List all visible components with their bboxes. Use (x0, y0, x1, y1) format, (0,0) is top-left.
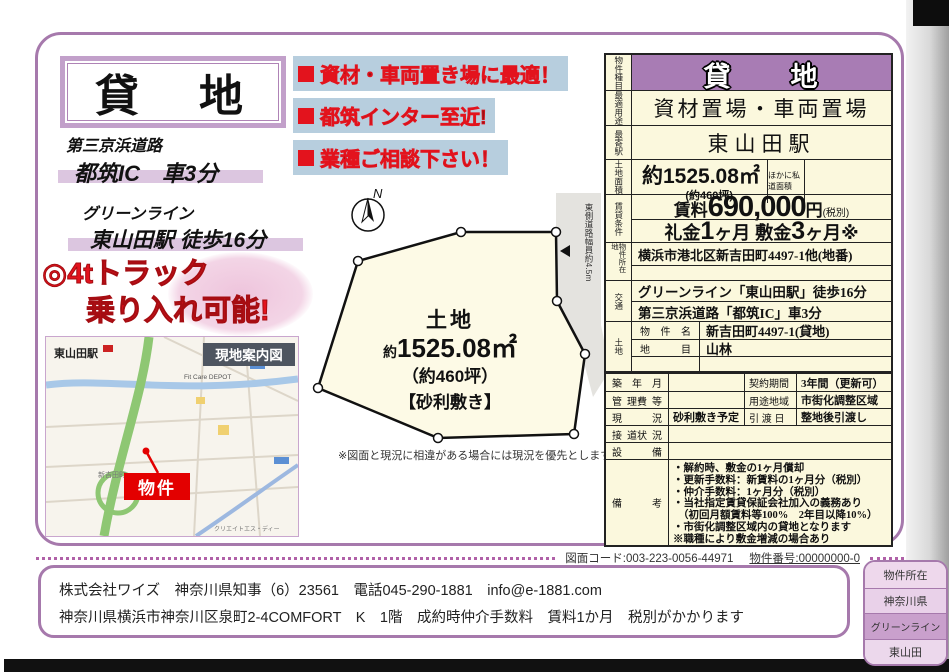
row-label-location: 物件所在地 (606, 243, 632, 280)
location-badge: 物件所在 神奈川県 グリーンライン 東山田 (863, 560, 948, 666)
map-title: 現地案内図 (215, 347, 283, 363)
map-store-label: Fit Care DEPOT (184, 374, 231, 381)
location-empty-row (632, 265, 891, 280)
mgmt-label: 管理費等 (606, 392, 668, 408)
equipment-value (668, 443, 891, 459)
row-label-use: 最適用途 (606, 91, 632, 125)
traffic-line1: グリーンライン「東山田駅」徒歩16分 (632, 281, 867, 301)
access-road-line1: 第三京浜道路 (66, 132, 218, 156)
contract-value: 3年間（更新可） (796, 374, 891, 391)
slogan-text: 都筑インター至近! (320, 107, 487, 129)
access-road: 第三京浜道路 都筑IC 車3分 (52, 132, 218, 188)
row-label-land: 土地 (606, 322, 632, 371)
equipment-label: 設備 (606, 443, 668, 459)
scan-bottom-bar (4, 659, 949, 672)
built-label: 築年月 (606, 374, 668, 391)
access-rail-line1: グリーンライン (82, 200, 266, 224)
red-square-icon (298, 150, 314, 166)
company-line1: 株式会社ワイズ 神奈川県知事（6）23561 電話045-290-1881 in… (59, 578, 847, 605)
row-label-station: 最寄駅 (606, 126, 632, 159)
remark-item: （初回月額賃料等100% 2年目以降10%） (673, 510, 889, 522)
dotted-line (36, 557, 555, 560)
slogan-text: 資材・車両置き場に最適！ (320, 65, 560, 87)
plot-name: 土地 (426, 308, 474, 332)
map-property-marker: 物件 (138, 478, 176, 498)
zoning-value: 市街化調整区域 (796, 392, 891, 408)
use-value: 資材置場・車両置場 (654, 93, 870, 123)
map-station-label: 東山田駅 (54, 346, 98, 360)
row-label-area: 土地面積 (606, 160, 632, 194)
access-road-line2: 都筑IC 車3分 (74, 156, 218, 188)
truck-line1: ◎4tトラック (42, 250, 209, 292)
badge-row: グリーンライン (865, 613, 946, 639)
zoning-label: 用途地域 (744, 392, 796, 408)
land-empty-label (632, 357, 700, 371)
red-square-icon (298, 108, 314, 124)
land-name-label: 物件名 (632, 322, 700, 339)
deposit-terms: 礼金1ヶ月 敷金3ヶ月※ (664, 217, 858, 246)
remarks-list: ・解約時、敷金の1ヶ月償却 ・更新手数料：新賃料の1ヶ月分（税別） ・仲介手数料… (668, 460, 891, 545)
row-label-rent: 賃貸条件 (606, 195, 632, 242)
remark-item: ・市街化調整区域内の貸地となります (673, 522, 889, 534)
remark-item: ・更新手数料：新賃料の1ヶ月分（税別） (673, 475, 889, 487)
remark-item: ・仲介手数料：1ヶ月分（税別） (673, 487, 889, 499)
company-info-box: 株式会社ワイズ 神奈川県知事（6）23561 電話045-290-1881 in… (38, 565, 850, 638)
location-value: 横浜市港北区新吉田町4497-1他(地番) (632, 245, 853, 264)
row-label-type: 物件種目 (606, 55, 632, 90)
plot-area: 約1525.08㎡ (383, 333, 517, 363)
page-title: 貸 地 (95, 60, 251, 124)
mgmt-value (668, 392, 744, 408)
remark-item: ・当社指定賃貸保証会社加入の義務あり (673, 498, 889, 510)
access-rail: グリーンライン 東山田駅 徒歩16分 (68, 200, 266, 254)
property-type-value: 貸 地 (704, 55, 820, 94)
contract-label: 契約期間 (744, 374, 796, 391)
slogan-item: 資材・車両置き場に最適！ (293, 56, 568, 91)
drawing-code: 図面コード:003-223-0056-44971 (565, 550, 733, 566)
badge-row: 神奈川県 (865, 588, 946, 614)
badge-row: 東山田 (865, 639, 946, 665)
handover-value: 整地後引渡し (796, 409, 891, 425)
red-square-icon (298, 66, 314, 82)
north-arrow-icon: N (352, 186, 384, 231)
current-value: 砂利敷き予定 (668, 409, 744, 425)
land-category-value: 山林 (700, 339, 891, 358)
map-graphic: 東山田駅 Fit Care DEPOT 新吉田町 クリエイトエス・ディー オーケ… (46, 337, 298, 536)
traffic-line2: 第三京浜道路「都筑IC」車3分 (632, 302, 822, 322)
built-value (668, 374, 744, 391)
property-number: 物件番号:00000000-0 (749, 550, 860, 566)
road-contact-label: 接道状況 (606, 426, 668, 442)
plot-tsubo: （約460坪） (402, 366, 498, 386)
slogan-item: 都筑インター至近! (293, 98, 495, 133)
map-poi-label: クリエイトエス・ディー (214, 525, 280, 533)
property-table-2: 築年月 契約期間 3年間（更新可） 管理費等 用途地域 市街化調整区域 現況 砂… (604, 372, 893, 547)
map-area-label: 新吉田町 (98, 470, 126, 479)
meta-line: 図面コード:003-223-0056-44971 物件番号:00000000-0 (36, 550, 904, 566)
remark-item: ・解約時、敷金の1ヶ月償却 (673, 463, 889, 475)
slogan-list: 資材・車両置き場に最適！ 都筑インター至近! 業種ご相談下さい！ (293, 56, 603, 182)
remarks-label: 備考 (606, 460, 668, 545)
title-box: 貸 地 (60, 56, 286, 128)
north-label: N (373, 186, 383, 201)
handover-label: 引 渡 日 (744, 409, 796, 425)
row-label-traffic: 交通 (606, 281, 632, 321)
remark-item: ※職種により敷金増減の場合あり (673, 534, 889, 546)
slogan-text: 業種ご相談下さい！ (320, 149, 500, 171)
company-line2: 神奈川県横浜市神奈川区泉町2-4COMFORT K 1階 成約時仲介手数料 賃料… (59, 605, 847, 632)
area-value: 約1525.08㎡ (642, 160, 767, 190)
scan-corner-black (913, 0, 949, 26)
land-plot-diagram: 東側道路幅員約4.5m N 土地 約1525.08㎡ （約460坪） 【砂利敷き… (305, 185, 610, 445)
road-width-label: 東側道路幅員約4.5m (584, 202, 594, 281)
slogan-item: 業種ご相談下さい！ (293, 140, 508, 175)
land-name-value: 新吉田町4497-1(貸地) (700, 321, 891, 340)
property-table: 物件種目 貸 地 最適用途 資材置場・車両置場 最寄駅 東山田駅 土地面積 約1… (604, 53, 893, 373)
location-map: 東山田駅 Fit Care DEPOT 新吉田町 クリエイトエス・ディー オーケ… (45, 336, 299, 537)
plot-note: ※図面と現況に相違がある場合には現況を優先とします。 (338, 447, 621, 463)
badge-row: 物件所在 (865, 562, 946, 588)
station-value: 東山田駅 (708, 128, 816, 158)
truck-line2: 乗り入れ可能! (86, 287, 270, 329)
plot-surface: 【砂利敷き】 (399, 392, 501, 412)
road-contact-value (668, 426, 891, 442)
current-label: 現況 (606, 409, 668, 425)
land-category-label: 地目 (632, 340, 700, 356)
